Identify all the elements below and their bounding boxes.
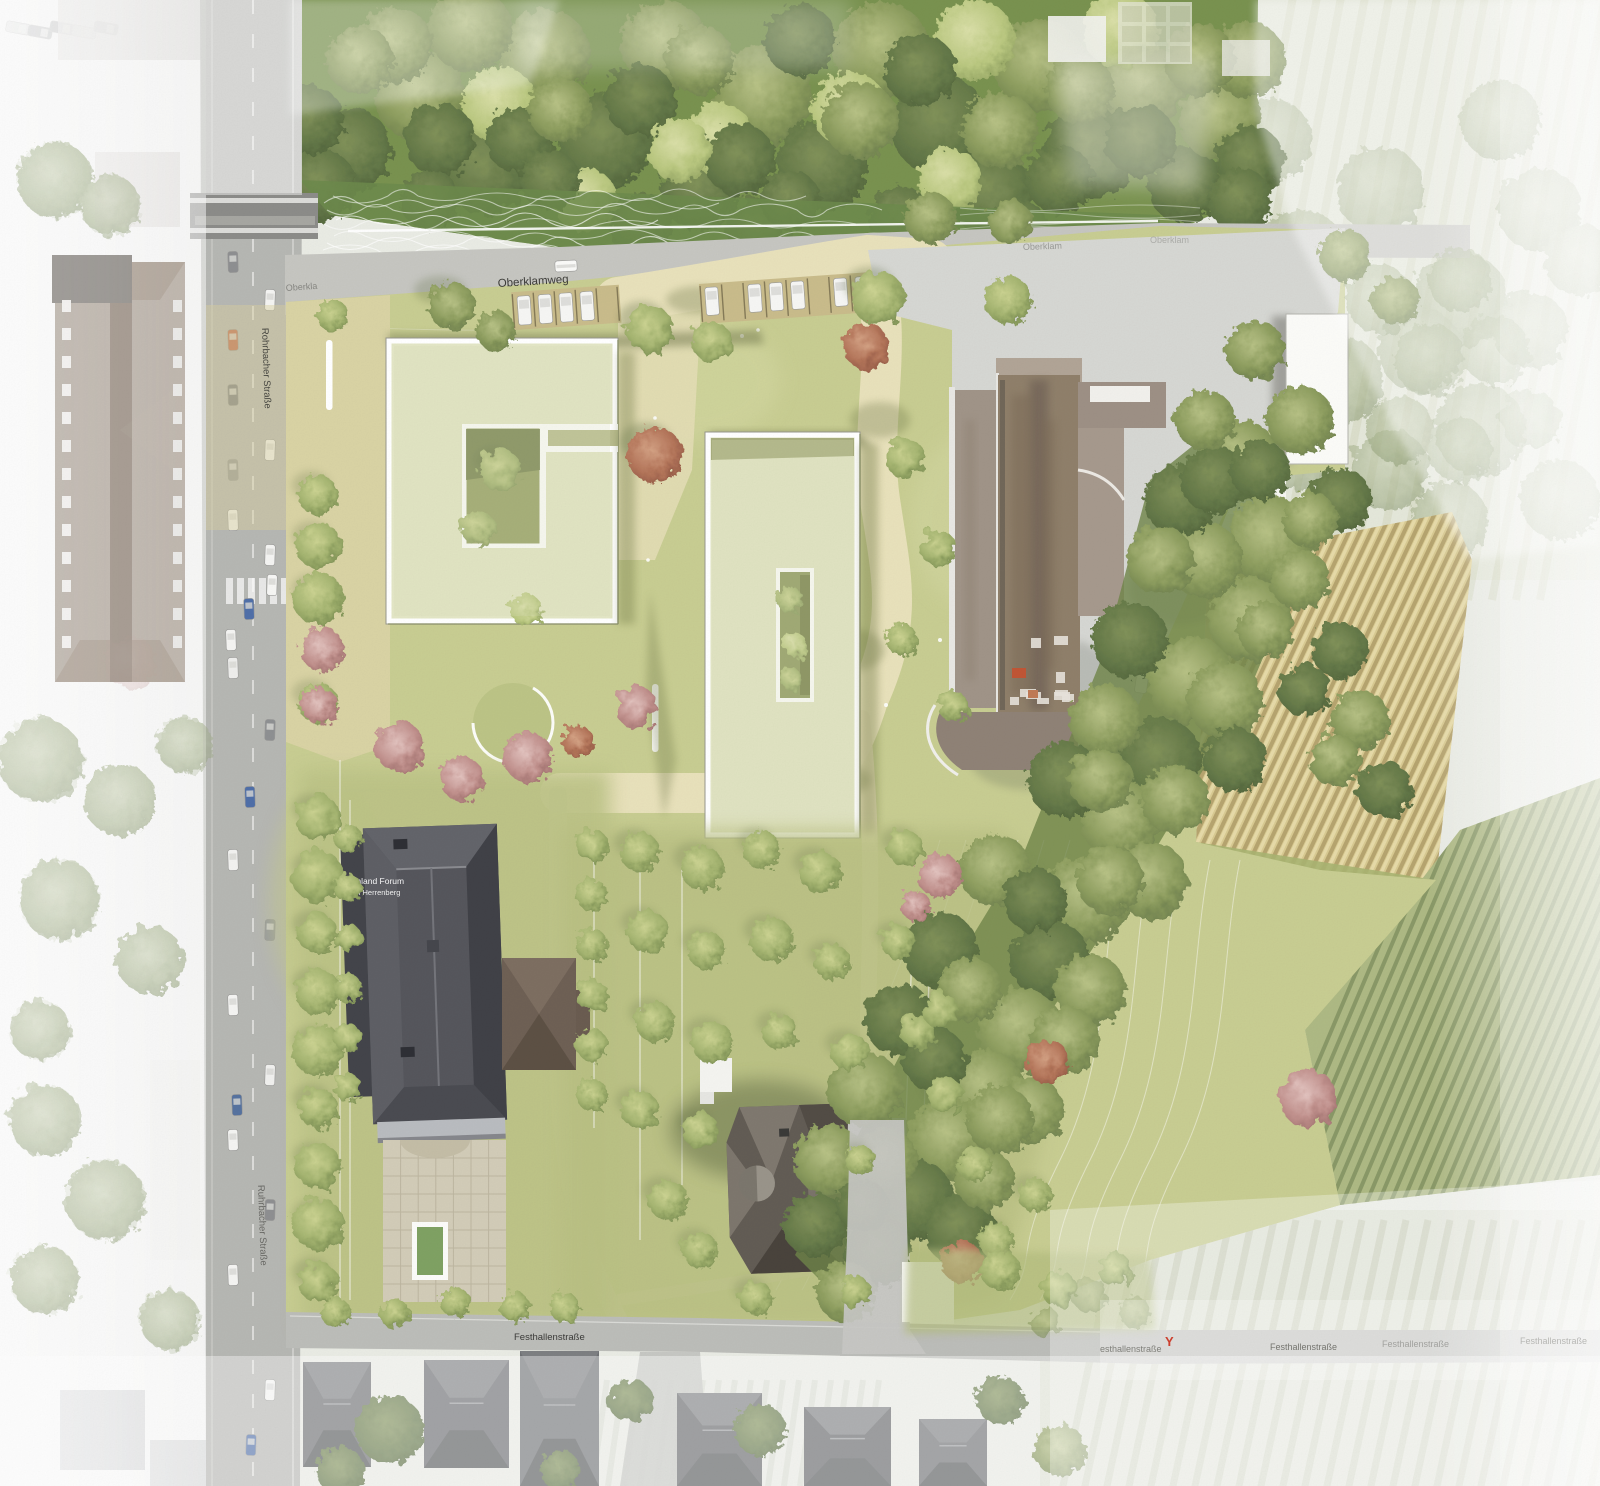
svg-text:Festhallenstraße: Festhallenstraße <box>1520 1336 1587 1346</box>
svg-text:Y: Y <box>1165 1334 1174 1349</box>
svg-text:Festhallenstraße: Festhallenstraße <box>514 1332 585 1343</box>
svg-text:esthallenstraße: esthallenstraße <box>1100 1344 1162 1354</box>
svg-text:Oberklam: Oberklam <box>1150 235 1189 245</box>
svg-text:Oberklam: Oberklam <box>1023 241 1062 252</box>
svg-text:Festhallenstraße: Festhallenstraße <box>1382 1339 1449 1349</box>
svg-text:Festhallenstraße: Festhallenstraße <box>1270 1342 1337 1352</box>
